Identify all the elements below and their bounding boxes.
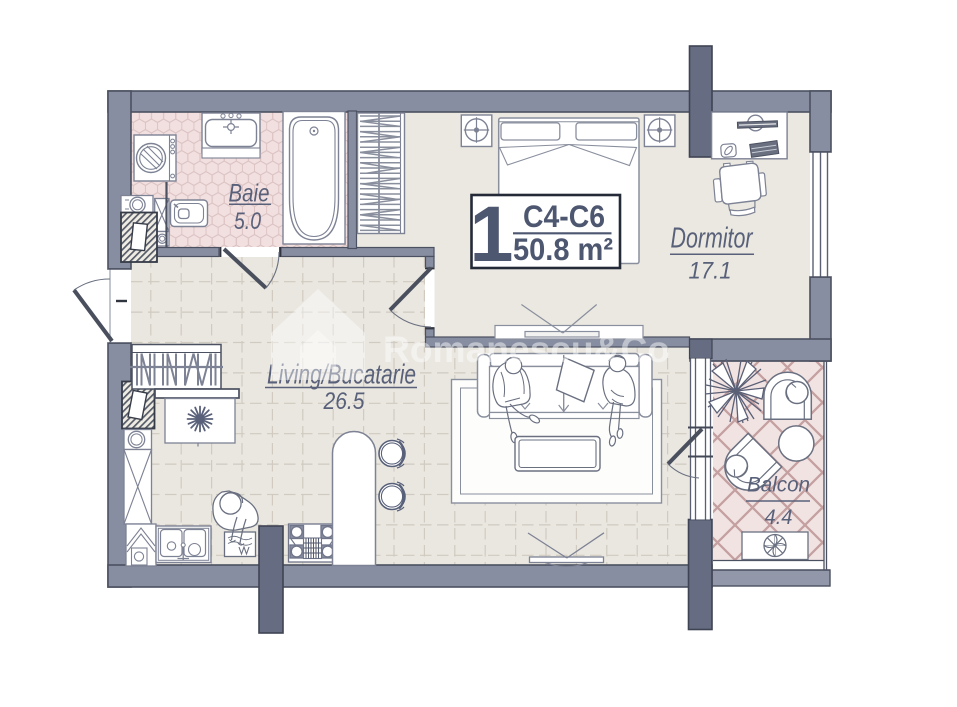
svg-text:Balcon: Balcon	[747, 474, 810, 497]
svg-text:Romanescu&Co: Romanescu&Co	[383, 329, 670, 370]
svg-text:Baie: Baie	[229, 180, 270, 208]
svg-text:Dormitor: Dormitor	[671, 223, 754, 255]
svg-text:17.1: 17.1	[689, 258, 732, 285]
svg-text:1: 1	[470, 189, 514, 278]
svg-text:50.8 m²: 50.8 m²	[513, 231, 613, 267]
svg-text:26.5: 26.5	[323, 388, 365, 415]
svg-text:5.0: 5.0	[234, 208, 262, 235]
svg-text:4.4: 4.4	[765, 506, 793, 529]
svg-text:C4-C6: C4-C6	[523, 198, 605, 234]
